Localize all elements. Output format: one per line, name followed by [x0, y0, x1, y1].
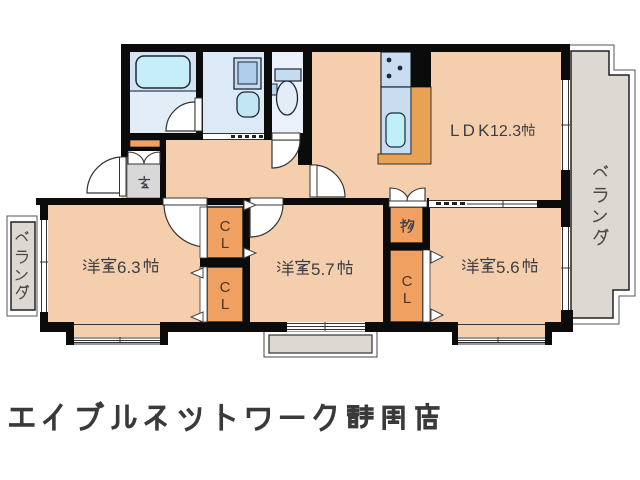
svg-text:L: L — [221, 235, 229, 252]
svg-text:5.7: 5.7 — [311, 260, 335, 279]
svg-text:C: C — [220, 218, 231, 235]
svg-text:C: C — [402, 273, 413, 290]
svg-text:6.3: 6.3 — [117, 258, 141, 277]
svg-text:L: L — [221, 296, 229, 313]
svg-text:C: C — [220, 279, 231, 296]
svg-text:L: L — [403, 290, 411, 307]
svg-text:5.6: 5.6 — [496, 258, 520, 277]
svg-text:12.3: 12.3 — [490, 123, 521, 140]
svg-text:LDK: LDK — [450, 121, 493, 140]
